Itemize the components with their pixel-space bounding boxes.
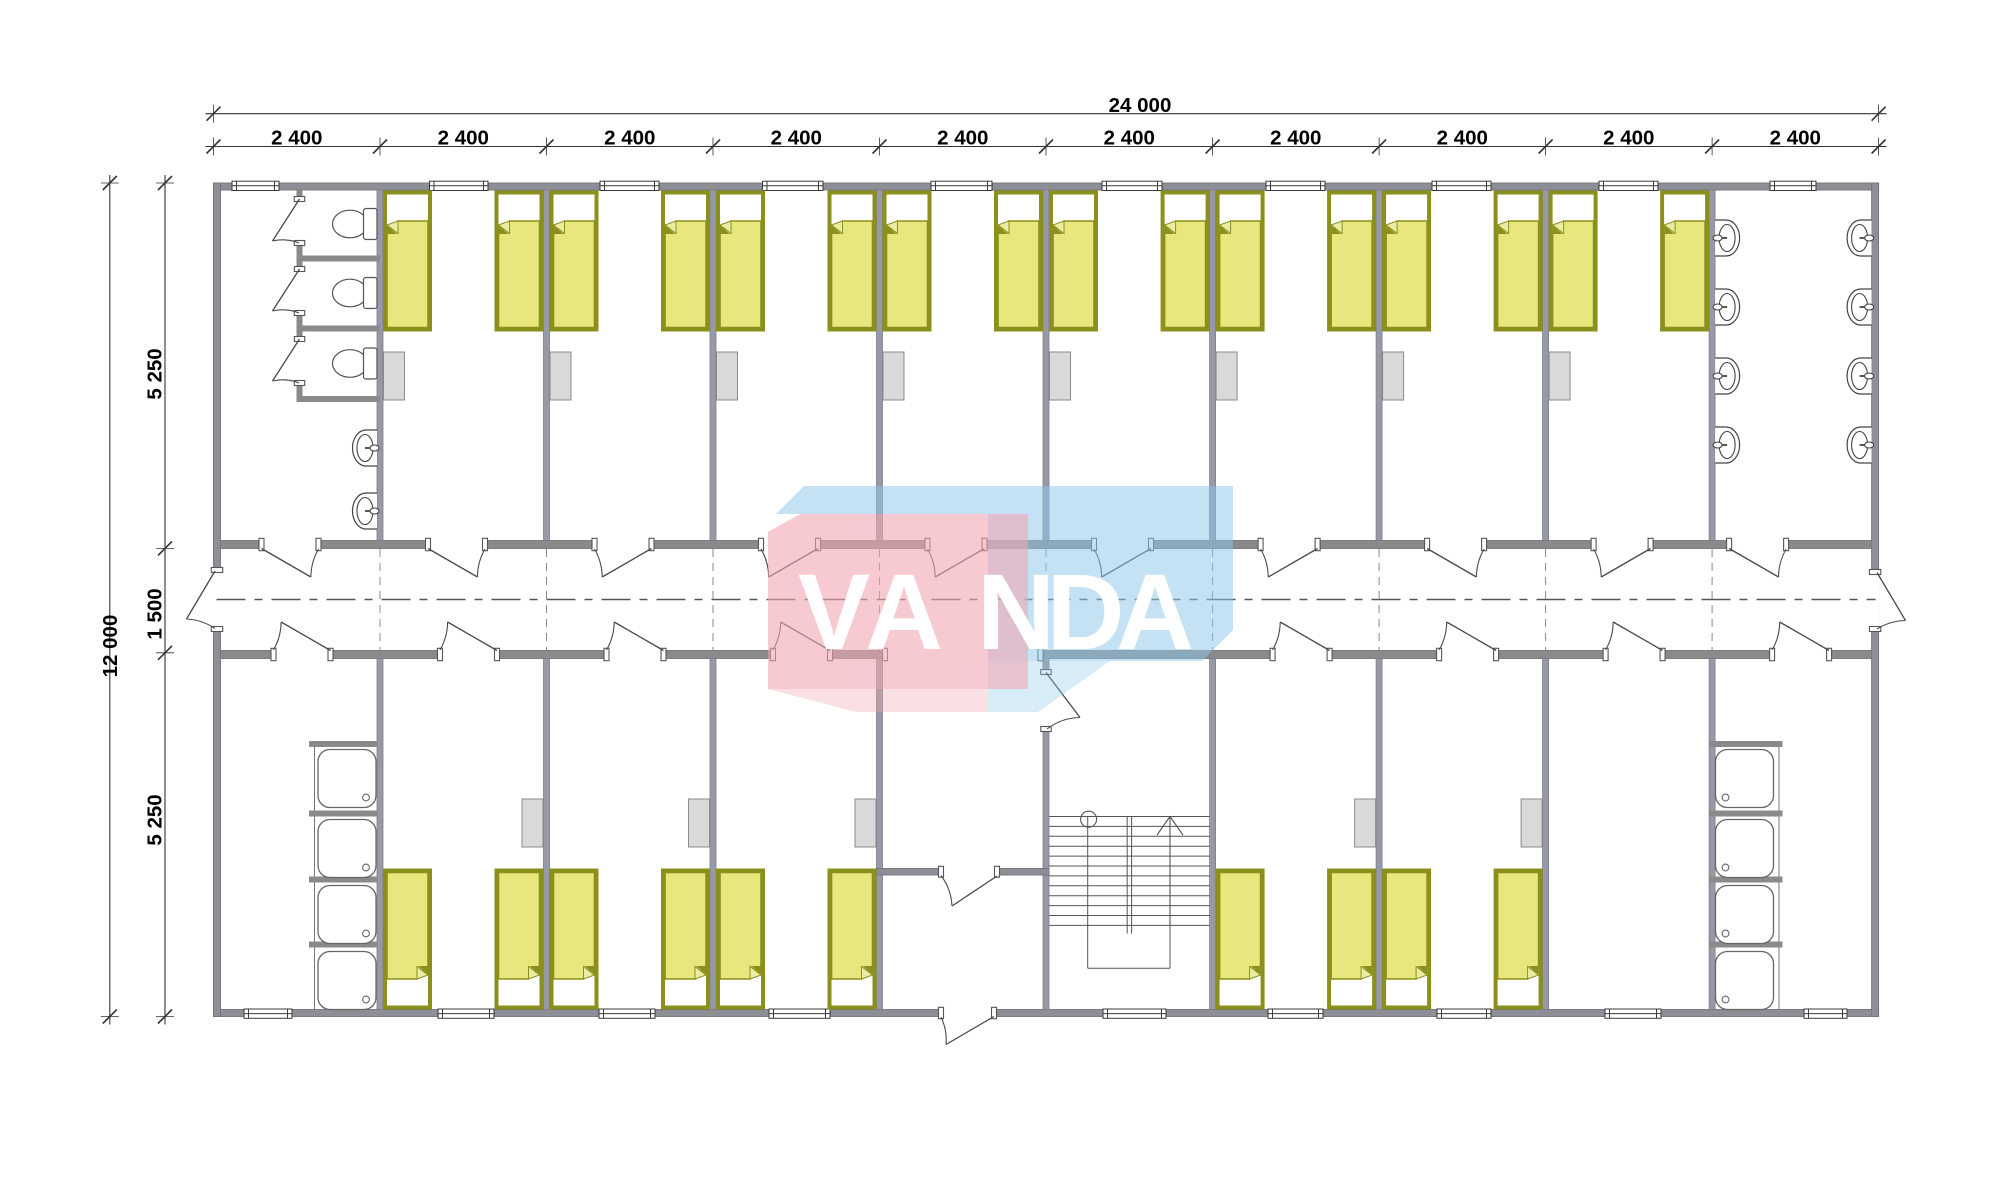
svg-text:2 400: 2 400 [1603,127,1654,150]
svg-text:1 500: 1 500 [144,588,167,639]
svg-text:VA: VA [798,551,946,672]
svg-text:2 400: 2 400 [1770,127,1821,150]
svg-text:2 400: 2 400 [438,127,489,150]
svg-text:2 400: 2 400 [771,127,822,150]
svg-text:5 250: 5 250 [144,794,167,845]
svg-text:2 400: 2 400 [271,127,322,150]
svg-text:2 400: 2 400 [604,127,655,150]
svg-text:2 400: 2 400 [1104,127,1155,150]
svg-text:5 250: 5 250 [144,348,167,399]
svg-text:24 000: 24 000 [1109,94,1172,117]
svg-text:12 000: 12 000 [99,615,122,678]
svg-text:NDA: NDA [977,551,1192,672]
svg-text:2 400: 2 400 [937,127,988,150]
svg-text:2 400: 2 400 [1437,127,1488,150]
svg-text:2 400: 2 400 [1270,127,1321,150]
